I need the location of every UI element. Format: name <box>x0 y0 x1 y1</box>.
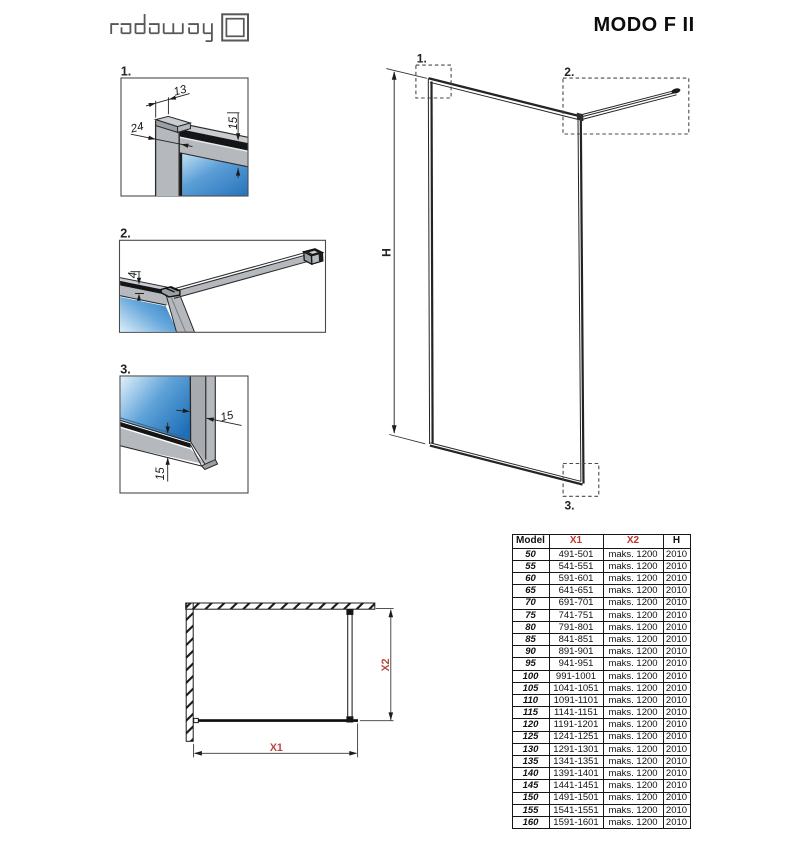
svg-text:X1: X1 <box>270 742 283 754</box>
svg-text:2.: 2. <box>120 227 131 241</box>
svg-text:H: H <box>379 248 393 257</box>
svg-text:15: 15 <box>228 116 240 129</box>
svg-text:1.: 1. <box>417 52 427 66</box>
svg-text:3.: 3. <box>565 498 575 512</box>
svg-text:3.: 3. <box>120 363 131 377</box>
svg-text:4: 4 <box>128 272 140 278</box>
svg-text:MODO F II: MODO F II <box>594 14 695 36</box>
svg-text:X2: X2 <box>380 658 392 671</box>
svg-text:1.: 1. <box>121 65 132 79</box>
svg-text:2.: 2. <box>564 65 574 79</box>
svg-text:15: 15 <box>155 467 167 480</box>
